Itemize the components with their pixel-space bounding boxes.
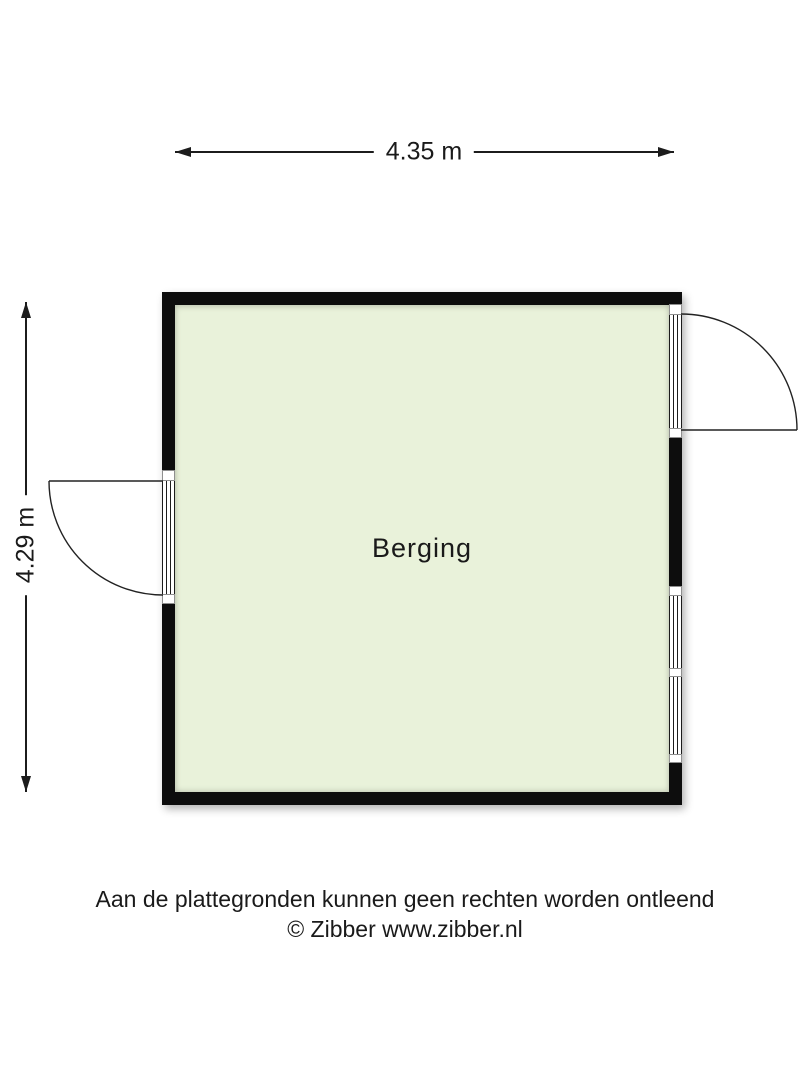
dimension-height-label: 4.29 m: [12, 495, 41, 595]
arrow-right-icon: [658, 147, 674, 157]
arrow-left-icon: [175, 147, 191, 157]
dimension-width-label: 4.35 m: [374, 138, 474, 167]
floor-plan: Berging: [162, 292, 682, 805]
copyright-text: © Zibber www.zibber.nl: [0, 914, 810, 944]
door-swing-left: [49, 481, 163, 595]
arrow-down-icon: [21, 776, 31, 792]
footer: Aan de plattegronden kunnen geen rechten…: [0, 884, 810, 944]
room-label: Berging: [162, 292, 682, 805]
arrow-up-icon: [21, 302, 31, 318]
disclaimer-text: Aan de plattegronden kunnen geen rechten…: [0, 884, 810, 914]
door-swing-right: [681, 314, 797, 430]
floorplan-page: 4.35 m 4.29 m Berging: [0, 0, 810, 1080]
